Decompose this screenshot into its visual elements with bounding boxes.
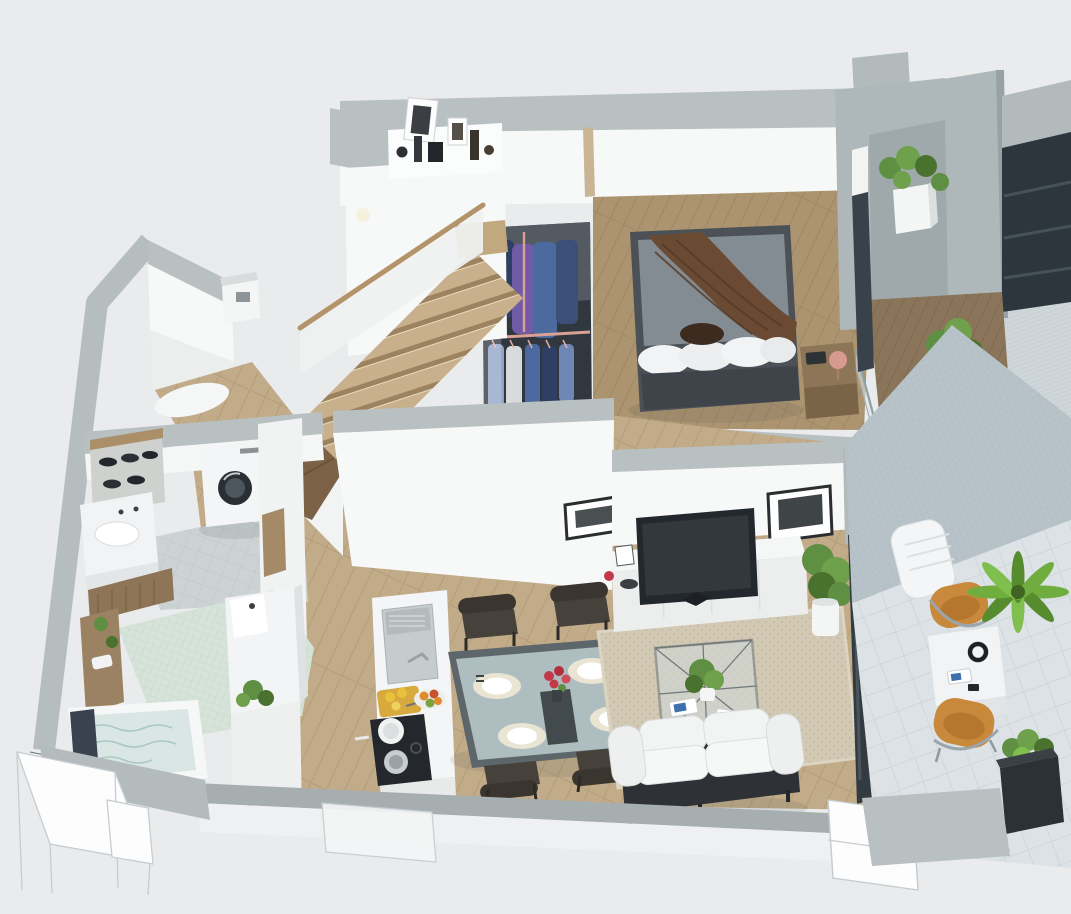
shoes	[142, 451, 158, 459]
table-plant	[704, 670, 724, 690]
red-vase	[604, 571, 614, 581]
door-frame	[583, 127, 595, 197]
shoes	[103, 480, 121, 489]
frame-art	[411, 105, 432, 135]
nightstand-top	[800, 342, 857, 388]
lemon	[392, 702, 401, 711]
chair-seat	[462, 609, 518, 639]
flower	[554, 666, 564, 676]
plate	[482, 678, 512, 695]
frame-art	[778, 494, 823, 530]
pillow	[760, 337, 796, 363]
flower	[544, 671, 554, 681]
table-plant-pot	[700, 688, 715, 701]
chair-seat	[554, 597, 610, 627]
leaf-cluster	[931, 173, 949, 191]
washer-drum	[225, 478, 245, 498]
fruit	[426, 699, 435, 708]
steel-pot-inner	[389, 755, 403, 769]
wireframe-block	[107, 800, 153, 864]
pot-handle	[355, 737, 369, 739]
pot-rim	[812, 598, 838, 606]
column-plant	[258, 690, 274, 706]
plate	[507, 728, 537, 745]
ornament-books	[428, 142, 443, 162]
vanity-sink	[95, 522, 139, 546]
floorplan-render: 3D isometric cutaway floor plan render o…	[0, 0, 1071, 914]
basin-faucet	[249, 603, 255, 609]
palm-center	[1011, 585, 1025, 599]
small-frame-art	[452, 123, 463, 140]
shoes	[99, 458, 117, 467]
fixture-detail	[236, 292, 250, 302]
garment	[533, 242, 557, 338]
flower	[562, 675, 571, 684]
garment	[559, 344, 574, 402]
garment	[525, 344, 540, 406]
wood-door	[262, 508, 286, 577]
apartment-cutaway-svg: 3D isometric cutaway floor plan render o…	[0, 0, 1071, 914]
accent-pillow	[680, 323, 724, 345]
magazine-cover	[951, 673, 962, 681]
island-sink	[382, 604, 438, 684]
terrace-slab-gray	[862, 788, 1010, 866]
fruit-bowl	[414, 689, 446, 709]
garment	[556, 240, 578, 324]
ornament-bowl	[484, 145, 494, 155]
wc-basin	[230, 594, 268, 638]
lemon	[397, 688, 407, 698]
lemon	[385, 692, 395, 702]
nightstand-front	[804, 383, 859, 419]
entry-fixture	[220, 272, 260, 324]
nightstand	[800, 342, 859, 419]
vase	[552, 690, 562, 702]
shoes	[127, 476, 145, 485]
ornament-vase	[414, 136, 422, 162]
bath-vanity	[80, 608, 124, 714]
vanity-plant	[106, 636, 118, 648]
faucet	[119, 510, 124, 515]
book	[806, 351, 827, 365]
lamp-shade	[829, 351, 847, 369]
white-pot-lid	[383, 723, 399, 739]
leaf-cluster	[915, 155, 937, 177]
core-wall	[333, 398, 624, 590]
ornament-sphere	[397, 147, 408, 158]
faucet	[134, 507, 139, 512]
vanity-plant	[94, 617, 108, 631]
orange	[420, 692, 429, 701]
table-top	[928, 626, 1006, 706]
dark-glazing	[1002, 132, 1071, 312]
wireframe-block	[322, 803, 436, 862]
framed-art-right	[768, 486, 832, 542]
lamp-base	[832, 380, 844, 385]
flower	[550, 680, 559, 689]
phone	[968, 684, 979, 691]
orange	[434, 697, 442, 705]
planter-box	[893, 184, 931, 234]
shoes	[121, 454, 139, 463]
wall-light	[356, 208, 370, 222]
palm-plant	[967, 551, 1069, 633]
dark-bowl	[620, 579, 638, 589]
bedroom-side-wall	[852, 146, 868, 196]
planter-box	[1000, 756, 1064, 834]
ornament-bottle	[470, 130, 479, 160]
leaf-cluster	[893, 171, 911, 189]
tv-screen-inner	[642, 515, 751, 596]
column-plant	[236, 693, 250, 707]
console-small-frame	[615, 545, 634, 566]
